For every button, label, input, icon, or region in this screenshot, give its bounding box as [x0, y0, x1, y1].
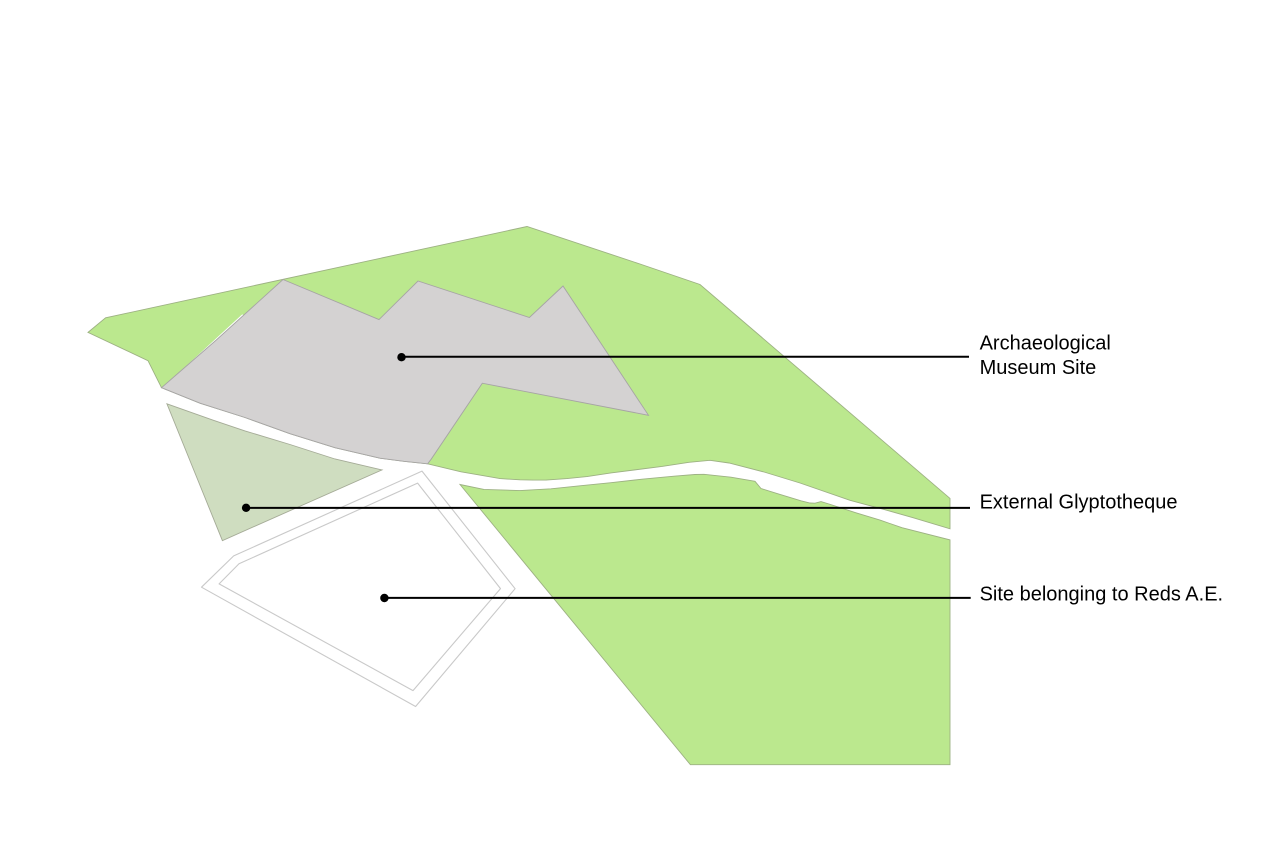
svg-text:Site belonging to Reds A.E.: Site belonging to Reds A.E.: [980, 583, 1224, 605]
svg-text:Museum Site: Museum Site: [980, 357, 1097, 379]
svg-text:External Glyptotheque: External Glyptotheque: [980, 492, 1178, 514]
svg-text:Archaeological: Archaeological: [980, 332, 1111, 354]
